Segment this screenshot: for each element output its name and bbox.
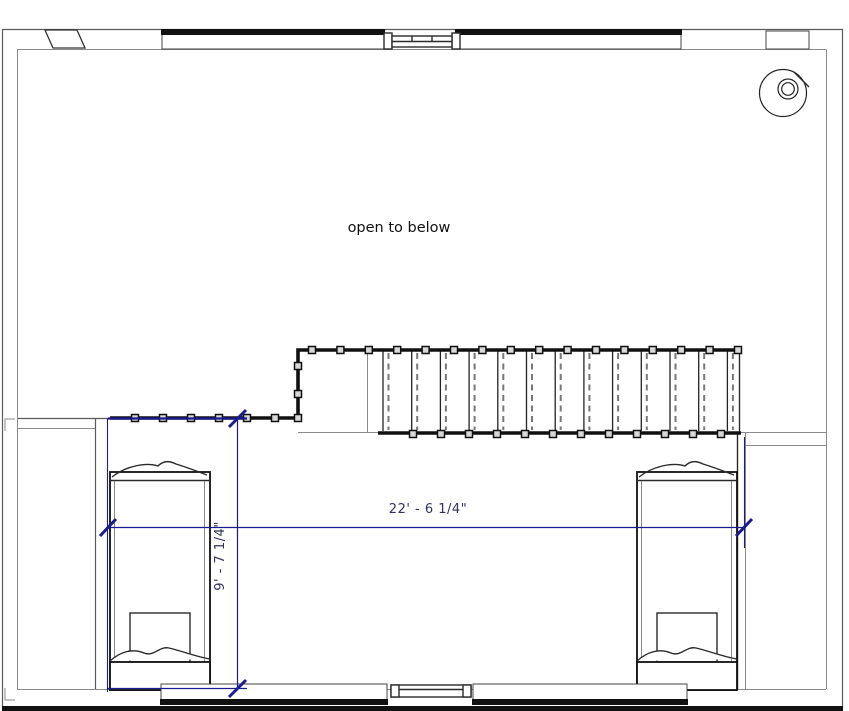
railing-post <box>494 431 501 438</box>
floor-plan-canvas: 22' - 6 1/4" 9' - 7 1/4" open to below <box>0 0 849 711</box>
staircase <box>368 350 742 433</box>
railing-post <box>718 431 725 438</box>
toilet <box>760 70 810 117</box>
railing-post <box>272 415 279 422</box>
railing-post <box>522 431 529 438</box>
bed-left <box>110 462 210 690</box>
railing-post <box>578 431 585 438</box>
right-partition <box>298 433 826 690</box>
window-bottom-center-detail <box>391 685 471 697</box>
railing-post <box>706 347 713 354</box>
railing-post <box>422 347 429 354</box>
railing-posts <box>132 347 742 438</box>
railing-post <box>606 431 613 438</box>
railing-post <box>649 347 656 354</box>
railing-post <box>365 347 372 354</box>
window-bottom-right-sash <box>472 699 688 705</box>
railing-post <box>564 347 571 354</box>
vent-symbol <box>45 30 85 48</box>
wall-notch-top <box>5 419 15 431</box>
railing-post <box>536 347 543 354</box>
railing-post <box>295 391 302 398</box>
window-bottom-left <box>161 684 387 701</box>
railing-post <box>507 347 514 354</box>
railing-post <box>451 347 458 354</box>
bed-right <box>637 462 737 690</box>
railing-post <box>410 431 417 438</box>
guard-railing <box>110 347 742 438</box>
wall-bottom-outer <box>2 706 843 711</box>
window-bottom-right <box>473 684 687 701</box>
dim-text-vertical: 9' - 7 1/4" <box>213 521 228 591</box>
railing-post <box>479 347 486 354</box>
railing-post <box>634 431 641 438</box>
wall-notch-bottom <box>5 688 15 700</box>
railing-post <box>678 347 685 354</box>
window-top-center-detail <box>384 33 460 49</box>
railing-post <box>690 431 697 438</box>
railing-post <box>621 347 628 354</box>
railing-post <box>337 347 344 354</box>
railing-post <box>438 431 445 438</box>
railing-path <box>110 350 740 418</box>
railing-post <box>295 415 302 422</box>
railing-post <box>550 431 557 438</box>
wall-panel-top-right <box>766 31 809 49</box>
railing-post <box>309 347 316 354</box>
floor-plan-page: 22' - 6 1/4" 9' - 7 1/4" open to below <box>0 0 849 711</box>
railing-post <box>394 347 401 354</box>
annotations: 22' - 6 1/4" 9' - 7 1/4" open to below <box>213 220 467 591</box>
stair-treads <box>383 351 733 431</box>
left-partition <box>18 418 110 689</box>
dim-text-horizontal: 22' - 6 1/4" <box>389 502 467 517</box>
top-windows <box>45 29 809 49</box>
railing-post <box>466 431 473 438</box>
railing-post <box>593 347 600 354</box>
toilet-drain-inner <box>782 83 795 96</box>
window-top-right-sash <box>455 29 682 35</box>
window-top-left-sash <box>161 29 385 35</box>
railing-post <box>662 431 669 438</box>
open-to-below-label: open to below <box>348 220 451 236</box>
railing-post <box>295 363 302 370</box>
window-bottom-left-sash <box>160 699 388 705</box>
railing-post <box>735 347 742 354</box>
